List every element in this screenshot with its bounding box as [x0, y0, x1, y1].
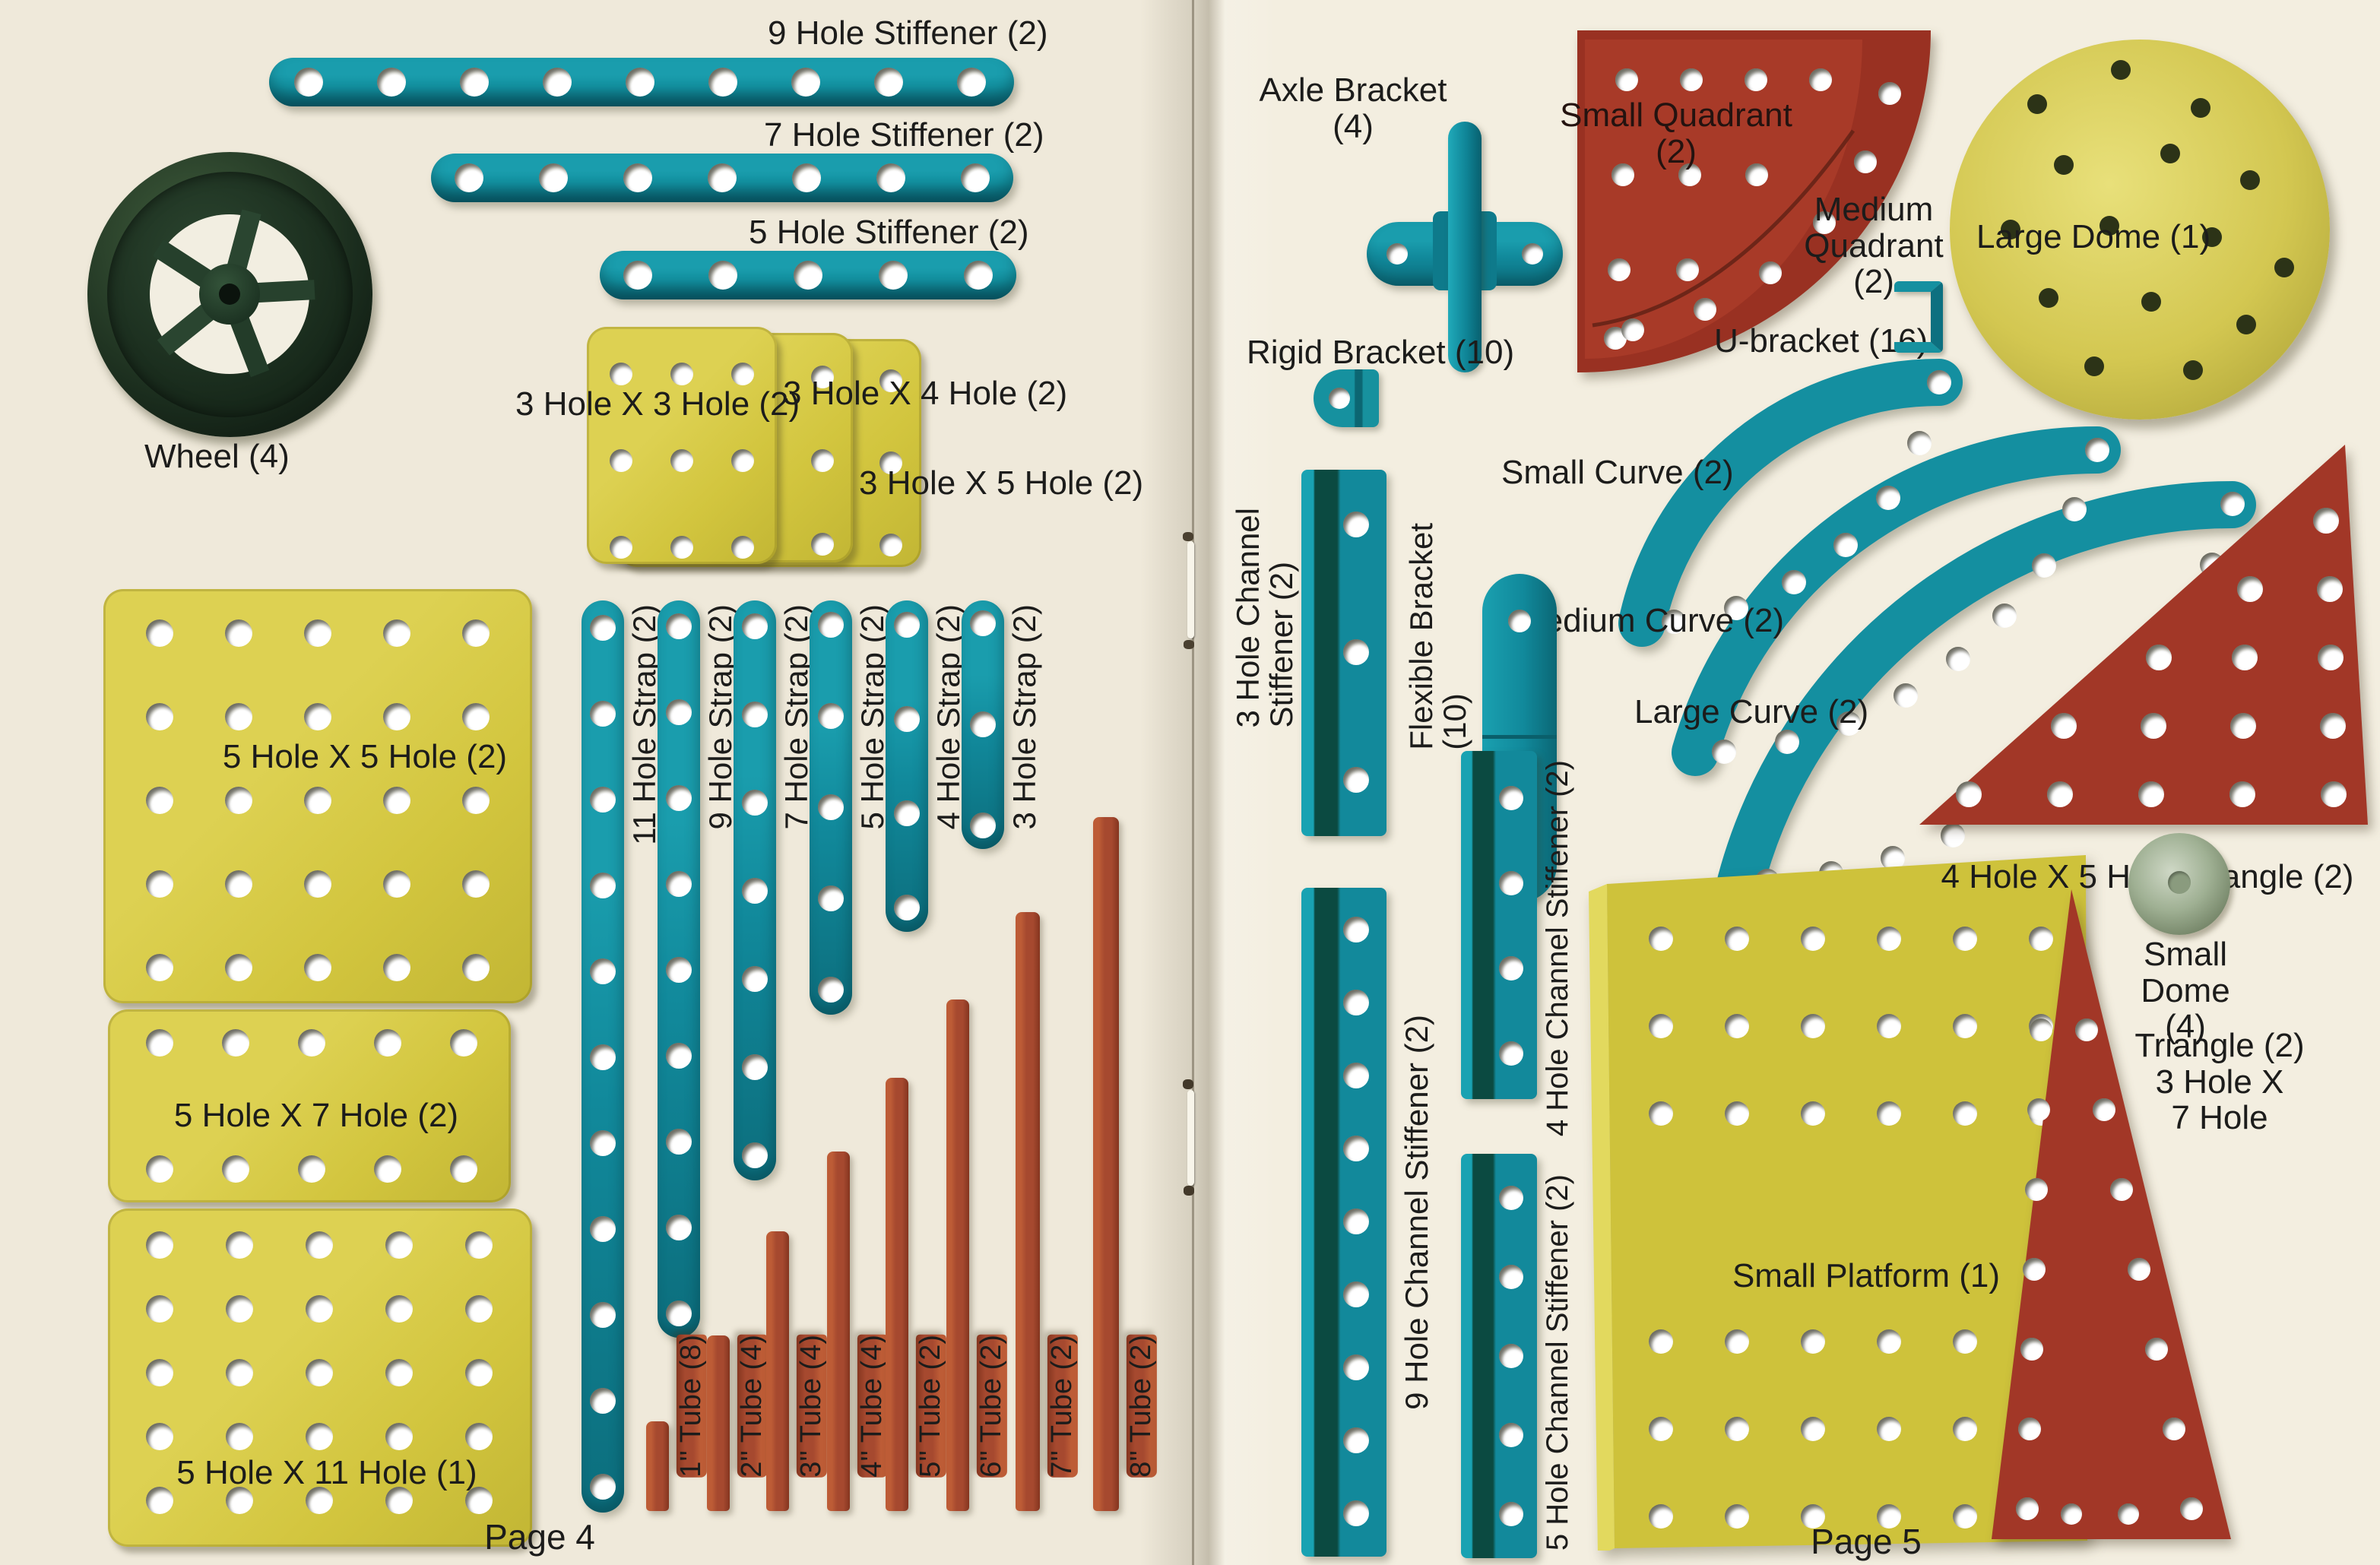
hole [450, 1155, 477, 1183]
stiffener-7-label: 7 Hole Stiffener (2) [764, 117, 1044, 154]
binding-seam [1192, 0, 1194, 1565]
hole [306, 1231, 333, 1259]
hole [385, 1359, 413, 1386]
ch4-part [1461, 751, 1537, 1099]
hole [894, 895, 920, 920]
hole [1343, 1209, 1369, 1234]
hole [1499, 1423, 1523, 1447]
hole [894, 612, 920, 638]
hole [1508, 610, 1531, 632]
hole [462, 619, 490, 647]
hole [666, 613, 692, 639]
hole [226, 1423, 253, 1450]
binding-thread [1187, 1090, 1194, 1186]
stiffener-7-bar [431, 154, 1013, 202]
hole [146, 1231, 173, 1259]
hole [1499, 871, 1523, 895]
hole [1499, 1186, 1523, 1210]
hole [731, 363, 754, 385]
hole [374, 1155, 401, 1183]
hole [1499, 1502, 1523, 1526]
small-curve-label: Small Curve (2) [1501, 455, 1734, 491]
hole [385, 1423, 413, 1450]
hole [666, 785, 692, 811]
hole [2191, 98, 2210, 118]
hole [385, 1231, 413, 1259]
stiffener-5-label: 5 Hole Stiffener (2) [749, 214, 1028, 251]
flexible-bracket-label: Flexible Bracket (10) [1405, 523, 1472, 750]
hole [298, 1155, 325, 1183]
hole [1329, 388, 1350, 409]
hole [708, 68, 737, 97]
triangle-3x7-label: Triangle (2) 3 Hole X 7 Hole [2121, 1028, 2318, 1136]
ch4-label: 4 Hole Channel Stiffener (2) [1542, 760, 1573, 1136]
hole [590, 1216, 616, 1242]
wheel-hub-hole [219, 284, 240, 305]
hole [465, 1295, 493, 1323]
hole [590, 958, 616, 984]
hole [610, 536, 632, 559]
hole [225, 703, 252, 730]
hole [590, 701, 616, 727]
hole [383, 954, 410, 981]
plate-3x4-label: 3 Hole X 4 Hole (2) [783, 375, 1067, 412]
hole [818, 794, 844, 820]
plate-5x7-label: 5 Hole X 7 Hole (2) [157, 1098, 476, 1134]
hole [383, 787, 410, 814]
tube-3in [766, 1231, 789, 1511]
hole [791, 68, 820, 97]
hole [1499, 956, 1523, 981]
ch5-label: 5 Hole Channel Stiffener (2) [1542, 1174, 1573, 1551]
tube-7in [1016, 912, 1040, 1511]
hole [465, 1359, 493, 1386]
strap-11-label: 11 Hole Strap (2) [628, 604, 661, 845]
hole [879, 534, 902, 556]
hole [1343, 1281, 1369, 1307]
hole [794, 261, 822, 290]
binding-stitch [1184, 640, 1194, 649]
hole [226, 1231, 253, 1259]
hole [225, 954, 252, 981]
hole [874, 68, 903, 97]
plate-5x11-label: 5 Hole X 11 Hole (1) [129, 1455, 524, 1491]
hole [970, 711, 996, 737]
hole [792, 163, 821, 192]
binding-thread [1187, 541, 1194, 638]
hole [1343, 1354, 1369, 1380]
hole [1343, 1427, 1369, 1453]
hole [666, 1300, 692, 1326]
hole [610, 363, 632, 385]
hole [811, 533, 834, 556]
binding-stitch [1183, 532, 1193, 541]
plate-5x11 [108, 1209, 532, 1547]
strap-7-label: 7 Hole Strap (2) [780, 604, 813, 829]
hole [1343, 767, 1369, 793]
triangle-4x5 [1908, 433, 2380, 836]
hole [964, 261, 993, 290]
gutter-shadow [1140, 0, 1277, 1565]
hole [1499, 1041, 1523, 1066]
hole [731, 536, 754, 559]
hole [2054, 155, 2074, 175]
stiffener-5-bar [600, 251, 1016, 299]
hole [465, 1231, 493, 1259]
hole [742, 1142, 768, 1168]
hole [626, 68, 654, 97]
hole [894, 706, 920, 732]
hole [304, 787, 331, 814]
tube-4in-label: 4'' Tube (4) [857, 1335, 888, 1478]
hole [222, 1155, 249, 1183]
small-quadrant-label: Small Quadrant (2) [1551, 97, 1802, 169]
hole [225, 619, 252, 647]
plate-3x3-label: 3 Hole X 3 Hole (2) [515, 386, 800, 423]
triangle-3x7 [1969, 882, 2258, 1551]
hole [1343, 917, 1369, 942]
hole [818, 703, 844, 729]
hole [666, 1215, 692, 1240]
hole [455, 163, 483, 192]
page-5-label: Page 5 [1794, 1523, 1938, 1561]
hole [1499, 786, 1523, 810]
hole [590, 1388, 616, 1414]
hole [225, 787, 252, 814]
hole [462, 954, 490, 981]
hole [742, 702, 768, 727]
hole [670, 449, 693, 472]
hole [742, 1054, 768, 1080]
strap-7 [734, 600, 776, 1180]
tube-6in [946, 1000, 969, 1511]
hole [225, 870, 252, 898]
stiffener-9-label: 9 Hole Stiffener (2) [768, 15, 1047, 52]
hole [539, 163, 568, 192]
hole [666, 957, 692, 983]
hole [146, 954, 173, 981]
hole [1343, 1063, 1369, 1088]
hole [811, 449, 834, 472]
hole [742, 878, 768, 904]
tube-2in [707, 1335, 730, 1511]
hole [957, 68, 986, 97]
hole [146, 1029, 173, 1057]
hole [294, 68, 323, 97]
hole [298, 1029, 325, 1057]
hole [146, 1295, 173, 1323]
hole [383, 619, 410, 647]
hole [146, 870, 173, 898]
hole [306, 1295, 333, 1323]
hole [146, 703, 173, 730]
hole [590, 615, 616, 641]
tube-2in-label: 2'' Tube (4) [737, 1335, 768, 1478]
ch3-label: 3 Hole Channel Stiffener (2) [1231, 508, 1298, 728]
hole [2160, 144, 2180, 163]
hole [970, 610, 996, 636]
hole [1499, 1344, 1523, 1368]
plate-5x5-label: 5 Hole X 5 Hole (2) [175, 739, 555, 775]
hole [666, 1043, 692, 1069]
catalog-spread: 9 Hole Stiffener (2) 7 Hole Stiffener (2… [0, 0, 2380, 1565]
hole [1343, 990, 1369, 1015]
hole [590, 787, 616, 813]
hole [304, 619, 331, 647]
hole [1386, 243, 1408, 265]
tube-8in [1093, 817, 1119, 1511]
hole [666, 699, 692, 725]
hole [666, 1129, 692, 1155]
hole [146, 1359, 173, 1386]
tube-1in-label: 1'' Tube (8) [677, 1335, 707, 1478]
strap-4 [886, 600, 928, 932]
hole [385, 1295, 413, 1323]
triangle-4x5-shape [1919, 445, 2368, 825]
hole [222, 1029, 249, 1057]
hole [1343, 512, 1369, 537]
ch9-label: 9 Hole Channel Stiffener (2) [1400, 1015, 1434, 1410]
hole [666, 871, 692, 897]
hole [462, 703, 490, 730]
strap-9 [658, 600, 700, 1338]
strap-5-label: 5 Hole Strap (2) [856, 604, 889, 829]
hole [590, 1130, 616, 1156]
hole [1522, 243, 1543, 265]
strap-9-label: 9 Hole Strap (2) [704, 604, 737, 829]
hole [590, 1044, 616, 1070]
hole [1499, 1265, 1523, 1289]
hole [670, 536, 693, 559]
hole [970, 813, 996, 838]
hole [2027, 94, 2047, 114]
large-dome-label: Large Dome (1) [1976, 219, 2210, 255]
hole [876, 163, 905, 192]
plate-5x5 [103, 589, 532, 1003]
wheel-label: Wheel (4) [144, 439, 290, 475]
hole [708, 261, 737, 290]
hole [304, 954, 331, 981]
hole [226, 1295, 253, 1323]
hole [590, 1474, 616, 1500]
hole [462, 870, 490, 898]
tube-4in [827, 1152, 850, 1511]
tube-6in-label: 6'' Tube (2) [977, 1335, 1007, 1478]
hole [742, 966, 768, 992]
hole [377, 68, 406, 97]
hole [146, 1155, 173, 1183]
strap-3 [962, 600, 1004, 849]
tube-5in-label: 5'' Tube (2) [916, 1335, 946, 1478]
hole [590, 1302, 616, 1328]
hole [304, 703, 331, 730]
hole [465, 1423, 493, 1450]
ch9-part [1301, 888, 1386, 1557]
hole [1343, 1136, 1369, 1161]
hole [226, 1359, 253, 1386]
hole [460, 68, 489, 97]
hole [306, 1423, 333, 1450]
large-curve-label: Large Curve (2) [1634, 694, 1868, 730]
ch5-part [1461, 1154, 1537, 1558]
hole [961, 163, 990, 192]
hole [742, 790, 768, 816]
hole [306, 1359, 333, 1386]
hole [818, 612, 844, 638]
strap-4-label: 4 Hole Strap (2) [932, 604, 965, 829]
binding-stitch [1183, 1079, 1193, 1089]
hole [590, 873, 616, 898]
strap-5 [810, 600, 852, 1015]
hole [2274, 258, 2294, 277]
hole [146, 1423, 173, 1450]
hole [2240, 170, 2260, 190]
hole [543, 68, 572, 97]
rigid-bracket [1314, 369, 1379, 427]
triangle-3x7-shape [1992, 889, 2231, 1539]
hole [462, 787, 490, 814]
wheel-photo [87, 152, 372, 437]
tube-5in [886, 1078, 908, 1511]
rigid-bracket-label: Rigid Bracket (10) [1247, 334, 1514, 371]
plate-3x5-label: 3 Hole X 5 Hole (2) [859, 465, 1143, 502]
strap-11 [582, 600, 624, 1513]
ch3-part [1301, 470, 1386, 836]
hole [146, 787, 173, 814]
hole [708, 163, 737, 192]
hole [879, 261, 908, 290]
plate-3x3 [587, 327, 777, 564]
hole [383, 703, 410, 730]
binding-stitch [1184, 1186, 1194, 1196]
tube-3in-label: 3'' Tube (4) [797, 1335, 827, 1478]
page-4-label: Page 4 [471, 1519, 608, 1557]
hole [742, 613, 768, 639]
hole [383, 870, 410, 898]
hole [818, 885, 844, 911]
strap-3-label: 3 Hole Strap (2) [1008, 604, 1041, 829]
tube-7in-label: 7'' Tube (2) [1047, 1335, 1078, 1478]
hole [374, 1029, 401, 1057]
flexible-bracket-seam [1482, 735, 1557, 739]
hole [146, 619, 173, 647]
hole [670, 363, 693, 385]
hole [623, 261, 652, 290]
tube-1in [646, 1421, 669, 1511]
stiffener-9-bar [269, 58, 1014, 106]
hole [1343, 639, 1369, 665]
hole [818, 977, 844, 1003]
hole [731, 449, 754, 472]
hole [304, 870, 331, 898]
hole [1343, 1500, 1369, 1526]
hole [894, 800, 920, 826]
hole [610, 449, 632, 472]
hole [450, 1029, 477, 1057]
hole [2111, 60, 2131, 80]
hole [623, 163, 652, 192]
